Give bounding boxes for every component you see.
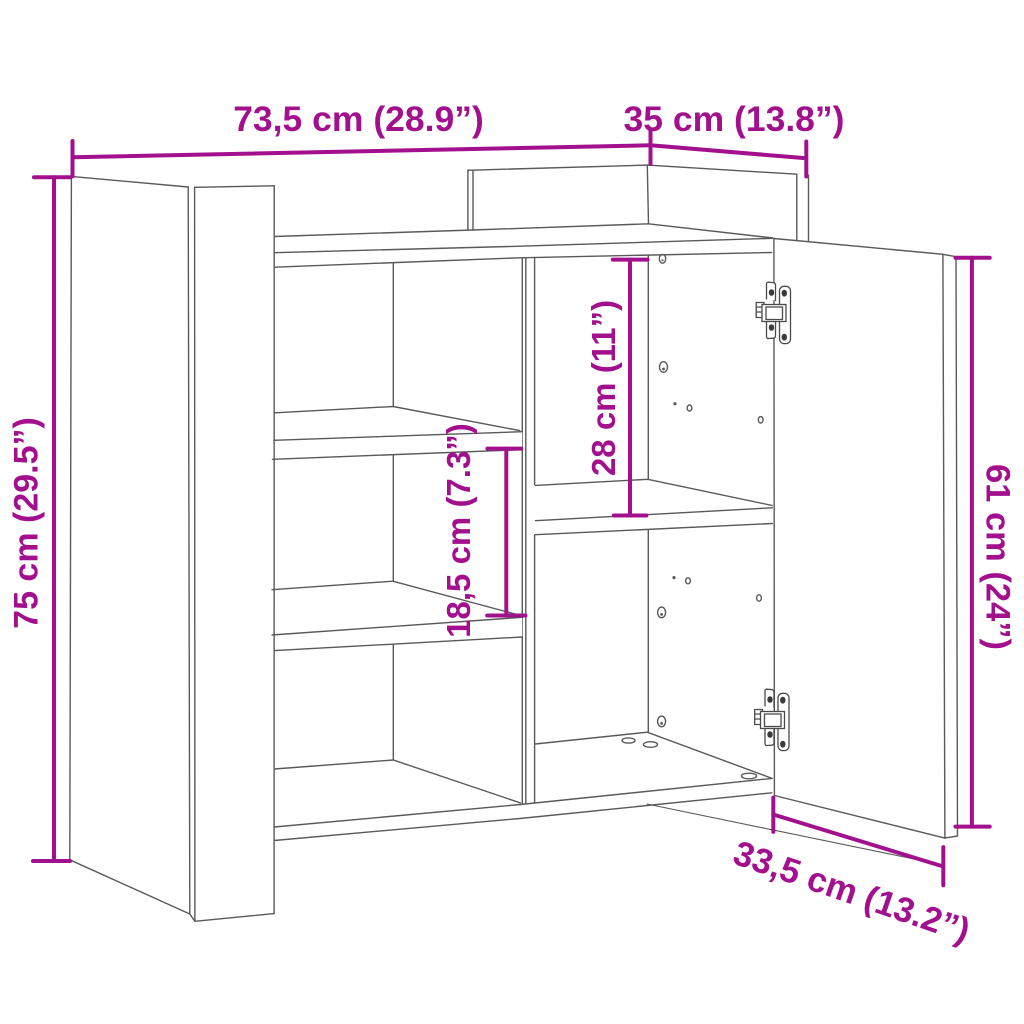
svg-text:28 cm (11”): 28 cm (11”)	[585, 300, 622, 476]
svg-text:75 cm (29.5”): 75 cm (29.5”)	[8, 417, 46, 629]
svg-text:33,5 cm (13.2”): 33,5 cm (13.2”)	[729, 833, 975, 950]
svg-text:18,5 cm (7.3”): 18,5 cm (7.3”)	[440, 423, 477, 638]
svg-text:35 cm (13.8”): 35 cm (13.8”)	[623, 99, 844, 139]
svg-text:61 cm (24”): 61 cm (24”)	[979, 464, 1017, 650]
svg-text:73,5 cm (28.9”): 73,5 cm (28.9”)	[233, 99, 484, 139]
